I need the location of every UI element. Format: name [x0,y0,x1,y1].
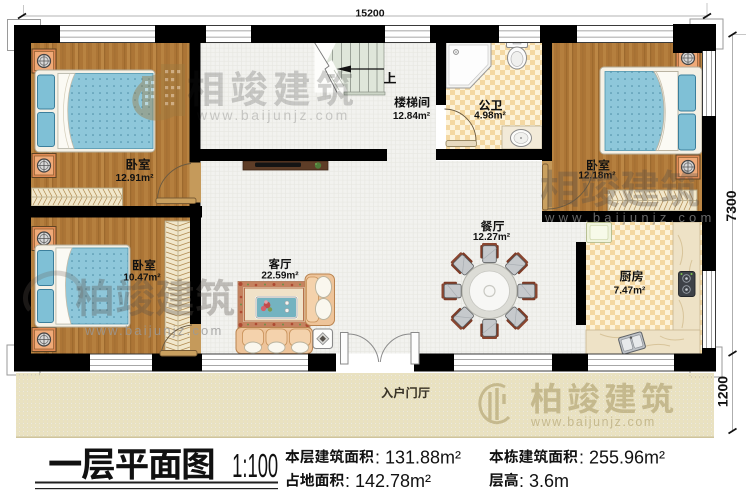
svg-text:: 131.88m²: : 131.88m² [375,448,461,468]
svg-text:7.47m²: 7.47m² [614,286,646,297]
svg-text:: 142.78m²: : 142.78m² [345,471,431,491]
svg-text:: 255.96m²: : 255.96m² [579,448,665,468]
svg-text:www.baijunjz.com: www.baijunjz.com [544,210,716,225]
svg-text:22.59m²: 22.59m² [261,271,299,282]
svg-text:: 3.6m: : 3.6m [519,471,569,491]
svg-text:12.27m²: 12.27m² [473,232,511,243]
svg-text:www.baijunjz.com: www.baijunjz.com [84,323,224,338]
svg-text:12.84m²: 12.84m² [393,111,431,122]
svg-text:www.baijunjz.com: www.baijunjz.com [196,107,350,123]
svg-text:12.91m²: 12.91m² [116,173,155,184]
svg-text:1:100: 1:100 [232,447,278,484]
svg-text:7300: 7300 [723,190,739,221]
svg-text:1200: 1200 [715,376,731,407]
svg-text:15200: 15200 [355,7,384,19]
svg-text:www.baijunjz.com: www.baijunjz.com [530,415,656,429]
svg-text:10.47m²: 10.47m² [123,273,161,284]
svg-text:4.98m²: 4.98m² [474,111,506,122]
